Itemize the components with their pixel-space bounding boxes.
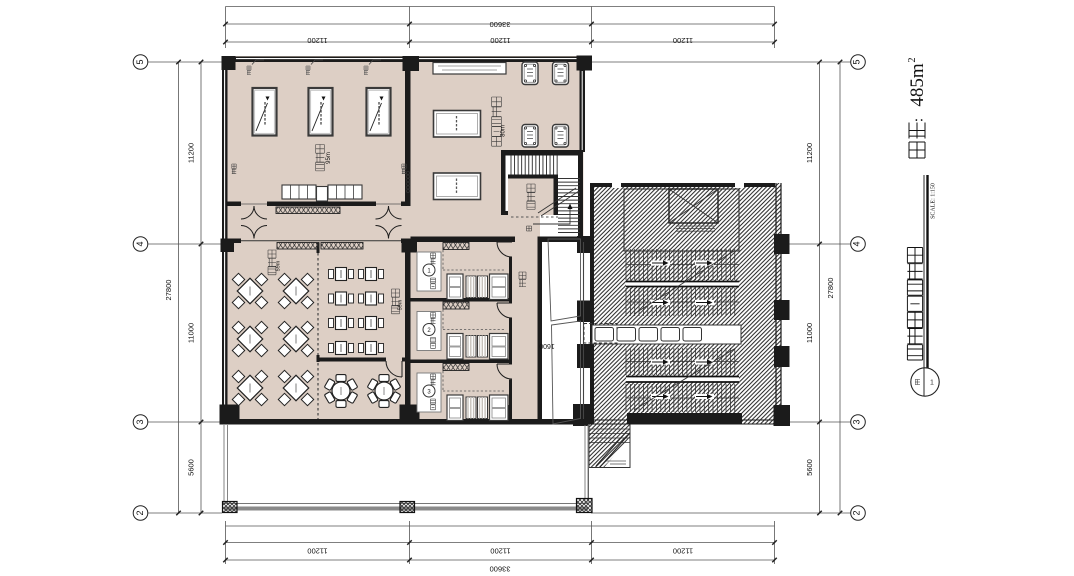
svg-text:95m: 95m [326, 152, 332, 164]
svg-text:11000: 11000 [187, 323, 196, 343]
svg-text:5: 5 [135, 59, 145, 64]
svg-text:59m: 59m [398, 299, 404, 310]
svg-text:11200: 11200 [673, 36, 693, 45]
svg-text:59m: 59m [276, 260, 282, 271]
svg-text:11200: 11200 [490, 547, 510, 556]
svg-text:485m: 485m [907, 63, 928, 107]
svg-text:11200: 11200 [673, 547, 693, 556]
svg-text:1: 1 [930, 380, 934, 387]
svg-text:5600: 5600 [187, 459, 196, 476]
svg-text::: : [911, 118, 927, 122]
svg-text:5: 5 [852, 59, 862, 64]
svg-text:2: 2 [135, 510, 145, 515]
svg-text:27800: 27800 [164, 280, 173, 301]
svg-text:3: 3 [852, 419, 862, 424]
svg-text:2: 2 [852, 510, 862, 515]
svg-text:2: 2 [907, 58, 918, 63]
svg-text:11200: 11200 [187, 143, 196, 163]
svg-text:11000: 11000 [805, 323, 814, 343]
svg-text:SCALE: 1:150: SCALE: 1:150 [931, 183, 937, 219]
svg-text:11200: 11200 [805, 143, 814, 163]
svg-text:11200: 11200 [307, 36, 327, 45]
svg-text:33600: 33600 [490, 20, 511, 29]
svg-text:4: 4 [852, 241, 862, 246]
svg-text:5600: 5600 [805, 459, 814, 476]
svg-text:11200: 11200 [307, 547, 327, 556]
svg-text:80m: 80m [501, 125, 507, 137]
svg-text:1600: 1600 [539, 342, 555, 349]
svg-text:4: 4 [135, 241, 145, 246]
svg-text:33600: 33600 [490, 565, 511, 574]
svg-text:11200: 11200 [490, 36, 510, 45]
svg-text:27800: 27800 [826, 278, 835, 299]
svg-text:3: 3 [135, 419, 145, 424]
